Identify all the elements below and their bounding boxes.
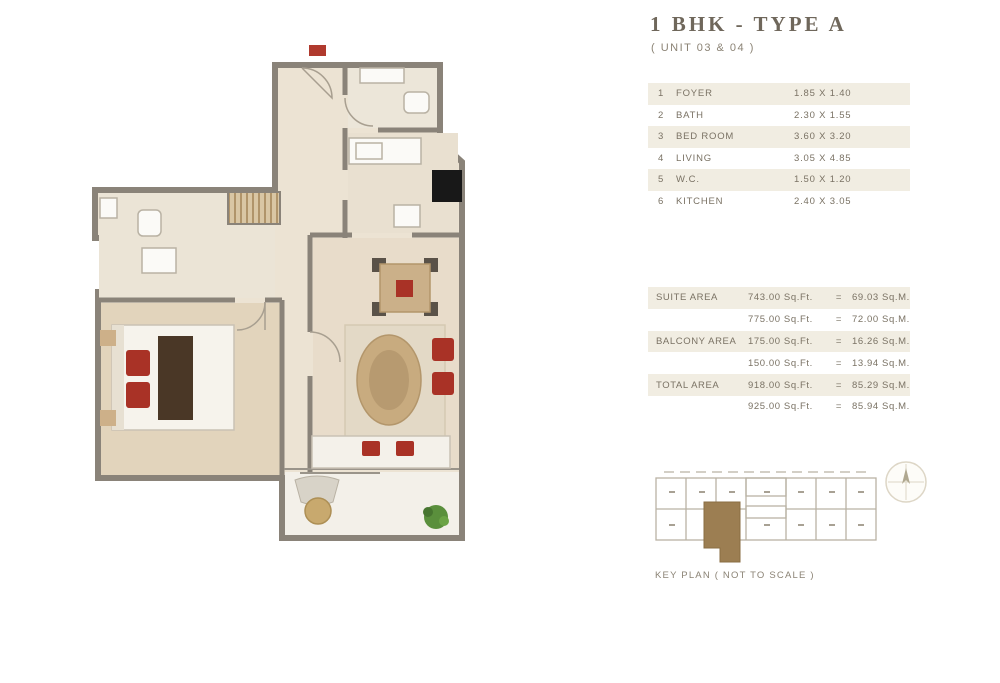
area-sqft: 743.00 Sq.Ft.	[748, 292, 826, 303]
room-dimension: 2.40 X 3.05	[794, 196, 904, 207]
room-no: 2	[648, 110, 676, 121]
room-row: 3 BED ROOM 3.60 X 3.20	[648, 126, 910, 148]
room-dimension: 1.50 X 1.20	[794, 174, 904, 185]
rooms-table: 1 FOYER 1.85 X 1.40 2 BATH 2.30 X 1.55 3…	[648, 83, 910, 212]
area-row: TOTAL AREA 918.00 Sq.Ft. = 85.29 Sq.M.	[648, 374, 910, 396]
area-sqm: 85.29 Sq.M.	[852, 380, 910, 391]
equals-sign: =	[826, 314, 852, 325]
area-row: 925.00 Sq.Ft. = 85.94 Sq.M.	[648, 396, 910, 418]
wardrobe	[228, 192, 280, 224]
areas-table: SUITE AREA 743.00 Sq.Ft. = 69.03 Sq.M. 7…	[648, 287, 910, 418]
room-row: 2 BATH 2.30 X 1.55	[648, 105, 910, 127]
equals-sign: =	[826, 358, 852, 369]
area-sqft: 175.00 Sq.Ft.	[748, 336, 826, 347]
room-no: 4	[648, 153, 676, 164]
room-no: 5	[648, 174, 676, 185]
compass-icon	[882, 458, 930, 506]
room-no: 6	[648, 196, 676, 207]
room-row: 5 W.C. 1.50 X 1.20	[648, 169, 910, 191]
page-title: 1 BHK - TYPE A	[650, 12, 950, 37]
dining-set	[372, 258, 438, 316]
bed	[100, 325, 234, 430]
area-label: SUITE AREA	[648, 292, 748, 303]
room-row: 6 KITCHEN 2.40 X 3.05	[648, 191, 910, 213]
area-row: 150.00 Sq.Ft. = 13.94 Sq.M.	[648, 352, 910, 374]
area-sqft: 925.00 Sq.Ft.	[748, 401, 826, 412]
room-name: KITCHEN	[676, 196, 794, 207]
brochure-page: 1 BHK - TYPE A ( UNIT 03 & 04 ) 1 FOYER …	[0, 0, 1000, 683]
room-no: 1	[648, 88, 676, 99]
room-name: LIVING	[676, 153, 794, 164]
room-name: BED ROOM	[676, 131, 794, 142]
room-name: W.C.	[676, 174, 794, 185]
room-no: 3	[648, 131, 676, 142]
room-name: FOYER	[676, 88, 794, 99]
page-subtitle: ( UNIT 03 & 04 )	[651, 42, 951, 54]
area-label: TOTAL AREA	[648, 380, 748, 391]
area-sqm: 85.94 Sq.M.	[852, 401, 910, 412]
highlighted-unit	[704, 502, 740, 562]
room-row: 4 LIVING 3.05 X 4.85	[648, 148, 910, 170]
area-sqm: 16.26 Sq.M.	[852, 336, 910, 347]
area-sqft: 775.00 Sq.Ft.	[748, 314, 826, 325]
equals-sign: =	[826, 292, 852, 303]
area-row: SUITE AREA 743.00 Sq.Ft. = 69.03 Sq.M.	[648, 287, 910, 309]
entry-marker	[309, 45, 326, 56]
room-row: 1 FOYER 1.85 X 1.40	[648, 83, 910, 105]
room-dimension: 3.05 X 4.85	[794, 153, 904, 164]
sofa	[312, 436, 450, 468]
floor-plan	[90, 40, 475, 550]
equals-sign: =	[826, 336, 852, 347]
service-shaft	[432, 170, 462, 202]
equals-sign: =	[826, 380, 852, 391]
area-label: BALCONY AREA	[648, 336, 748, 347]
room-dimension: 1.85 X 1.40	[794, 88, 904, 99]
equals-sign: =	[826, 401, 852, 412]
area-sqm: 72.00 Sq.M.	[852, 314, 910, 325]
area-sqft: 918.00 Sq.Ft.	[748, 380, 826, 391]
key-plan	[646, 466, 890, 570]
area-row: 775.00 Sq.Ft. = 72.00 Sq.M.	[648, 309, 910, 331]
coffee-table-area	[345, 325, 454, 438]
area-sqft: 150.00 Sq.Ft.	[748, 358, 826, 369]
area-sqm: 13.94 Sq.M.	[852, 358, 910, 369]
area-row: BALCONY AREA 175.00 Sq.Ft. = 16.26 Sq.M.	[648, 331, 910, 353]
key-plan-caption: KEY PLAN ( NOT TO SCALE )	[655, 570, 815, 581]
area-sqm: 69.03 Sq.M.	[852, 292, 910, 303]
room-dimension: 2.30 X 1.55	[794, 110, 904, 121]
room-dimension: 3.60 X 3.20	[794, 131, 904, 142]
room-name: BATH	[676, 110, 794, 121]
